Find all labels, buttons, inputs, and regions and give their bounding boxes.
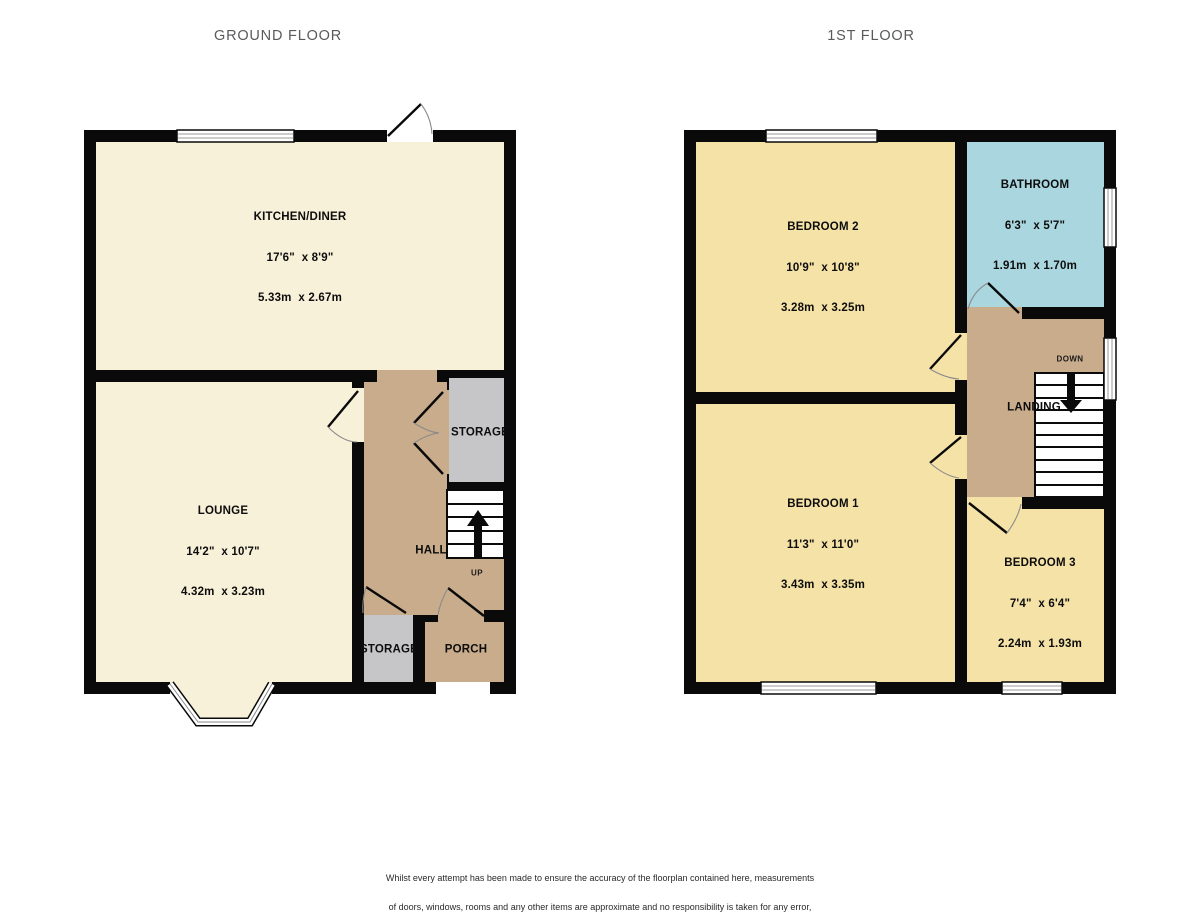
- room-label-bathroom: BATHROOM 6'3" x 5'7" 1.91m x 1.70m: [993, 152, 1077, 301]
- window: [1104, 188, 1116, 247]
- room-dims-metric: 2.24m x 1.93m: [998, 638, 1082, 652]
- staircase-up: [447, 490, 504, 558]
- window: [1002, 682, 1062, 694]
- room-dims-imperial: 7'4" x 6'4": [998, 597, 1082, 611]
- room-name: BATHROOM: [993, 179, 1077, 193]
- room-dims-imperial: 6'3" x 5'7": [993, 219, 1077, 233]
- room-dims-metric: 5.33m x 2.67m: [254, 292, 347, 306]
- room-label-lounge: LOUNGE 14'2" x 10'7" 4.32m x 3.23m: [181, 478, 265, 627]
- room-label-porch: PORCH: [445, 643, 488, 657]
- floor-title-ground: GROUND FLOOR: [214, 28, 342, 44]
- floor-title-first: 1ST FLOOR: [827, 28, 915, 44]
- room-label-hall: HALL: [415, 544, 446, 558]
- kitchen-hall-opening: [377, 370, 437, 382]
- room-hall: [364, 382, 447, 615]
- room-label-storage-lower: STORAGE: [360, 643, 418, 657]
- door-kitchen-external: [387, 104, 433, 142]
- room-label-kitchen-diner: KITCHEN/DINER 17'6" x 8'9" 5.33m x 2.67m: [254, 184, 347, 333]
- room-dims-metric: 4.32m x 3.23m: [181, 586, 265, 600]
- room-label-bedroom-3: BEDROOM 3 7'4" x 6'4" 2.24m x 1.93m: [998, 530, 1082, 679]
- staircase-down: [1035, 373, 1104, 497]
- room-dims-metric: 3.43m x 3.35m: [781, 579, 865, 593]
- window: [761, 682, 876, 694]
- window: [766, 130, 877, 142]
- room-label-bedroom-2: BEDROOM 2 10'9" x 10'8" 3.28m x 3.25m: [781, 194, 865, 343]
- room-name: BEDROOM 3: [998, 557, 1082, 571]
- room-dims-metric: 1.91m x 1.70m: [993, 260, 1077, 274]
- room-dims-imperial: 11'3" x 11'0": [781, 538, 865, 552]
- stairs-up-label: UP: [471, 569, 483, 578]
- room-label-landing: LANDING: [1007, 401, 1061, 415]
- disclaimer-line: of doors, windows, rooms and any other i…: [383, 903, 816, 912]
- window: [1104, 338, 1116, 400]
- floorplan-page: GROUND FLOOR 1ST FLOOR KITCHEN/DINER 17'…: [0, 0, 1200, 912]
- bay-window: [170, 682, 272, 722]
- room-name: KITCHEN/DINER: [254, 211, 347, 225]
- room-label-storage-upper: STORAGE: [451, 426, 509, 440]
- room-name: BEDROOM 1: [781, 498, 865, 512]
- room-dims-imperial: 10'9" x 10'8": [781, 261, 865, 275]
- room-name: LOUNGE: [181, 505, 265, 519]
- stairs-down-label: DOWN: [1057, 355, 1084, 364]
- room-dims-imperial: 17'6" x 8'9": [254, 251, 347, 265]
- room-name: BEDROOM 2: [781, 221, 865, 235]
- window: [177, 130, 294, 142]
- room-label-bedroom-1: BEDROOM 1 11'3" x 11'0" 3.43m x 3.35m: [781, 471, 865, 620]
- room-dims-metric: 3.28m x 3.25m: [781, 302, 865, 316]
- porch-entry-gap: [436, 682, 490, 694]
- room-hall-lower: [447, 558, 504, 610]
- disclaimer-line: Whilst every attempt has been made to en…: [383, 874, 816, 884]
- room-dims-imperial: 14'2" x 10'7": [181, 545, 265, 559]
- disclaimer: Whilst every attempt has been made to en…: [383, 854, 816, 912]
- floorplan-drawing: [0, 0, 1200, 912]
